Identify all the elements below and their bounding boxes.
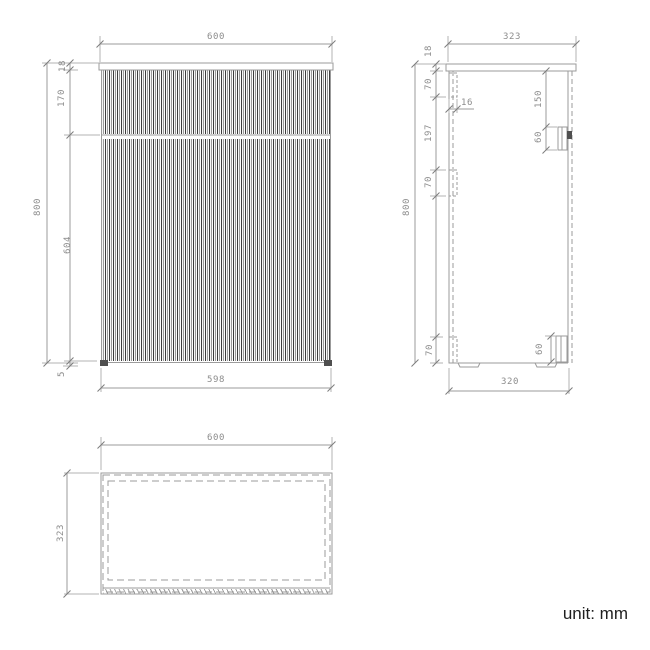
dim-side-bracket-height: 70 bbox=[424, 176, 434, 188]
dim-front-bottom-width: 598 bbox=[207, 375, 225, 385]
top-view-lines bbox=[101, 473, 332, 594]
dim-side-bracket-width: 16 bbox=[461, 98, 473, 108]
dim-side-handle-top-offset: 150 bbox=[534, 90, 544, 108]
dim-side-bracket-spacing: 197 bbox=[424, 124, 434, 142]
dim-side-bottom-depth: 320 bbox=[501, 377, 519, 387]
dim-side-bottom-bracket: 70 bbox=[425, 344, 435, 356]
front-right-foot bbox=[324, 360, 332, 366]
dim-front-base-gap: 5 bbox=[57, 371, 67, 377]
dim-side-top-thickness: 18 bbox=[424, 45, 434, 57]
side-handle-top bbox=[558, 127, 572, 150]
dim-side-overall-height: 800 bbox=[402, 198, 412, 216]
side-bracket-top bbox=[449, 73, 457, 97]
dim-side-bracket-top-offset: 70 bbox=[424, 78, 434, 90]
dim-side-bottom-handle: 60 bbox=[535, 343, 545, 355]
front-view-lines bbox=[99, 63, 333, 366]
dim-front-drawer-height: 170 bbox=[57, 89, 67, 107]
side-front-foot bbox=[535, 363, 557, 367]
dim-front-door-height: 604 bbox=[63, 236, 73, 254]
dim-front-top-thickness: 18 bbox=[58, 60, 68, 72]
side-handle-bottom bbox=[556, 336, 567, 362]
front-left-foot bbox=[100, 360, 108, 366]
dim-top-depth: 323 bbox=[56, 524, 66, 542]
unit-label: unit: mm bbox=[563, 604, 628, 624]
side-back-foot bbox=[458, 363, 480, 367]
dimension-lines bbox=[47, 44, 576, 594]
dimension-ticks bbox=[44, 41, 580, 598]
dim-front-top-width: 600 bbox=[207, 32, 225, 42]
dim-side-top-depth: 323 bbox=[503, 32, 521, 42]
dim-top-width: 600 bbox=[207, 433, 225, 443]
technical-drawing-page: 600 18 170 604 5 800 598 323 18 70 16 19… bbox=[0, 0, 650, 650]
drawing-linework bbox=[0, 0, 650, 650]
dim-side-handle-height: 60 bbox=[534, 131, 544, 143]
dim-front-overall-height: 800 bbox=[33, 198, 43, 216]
extension-lines bbox=[42, 36, 576, 594]
